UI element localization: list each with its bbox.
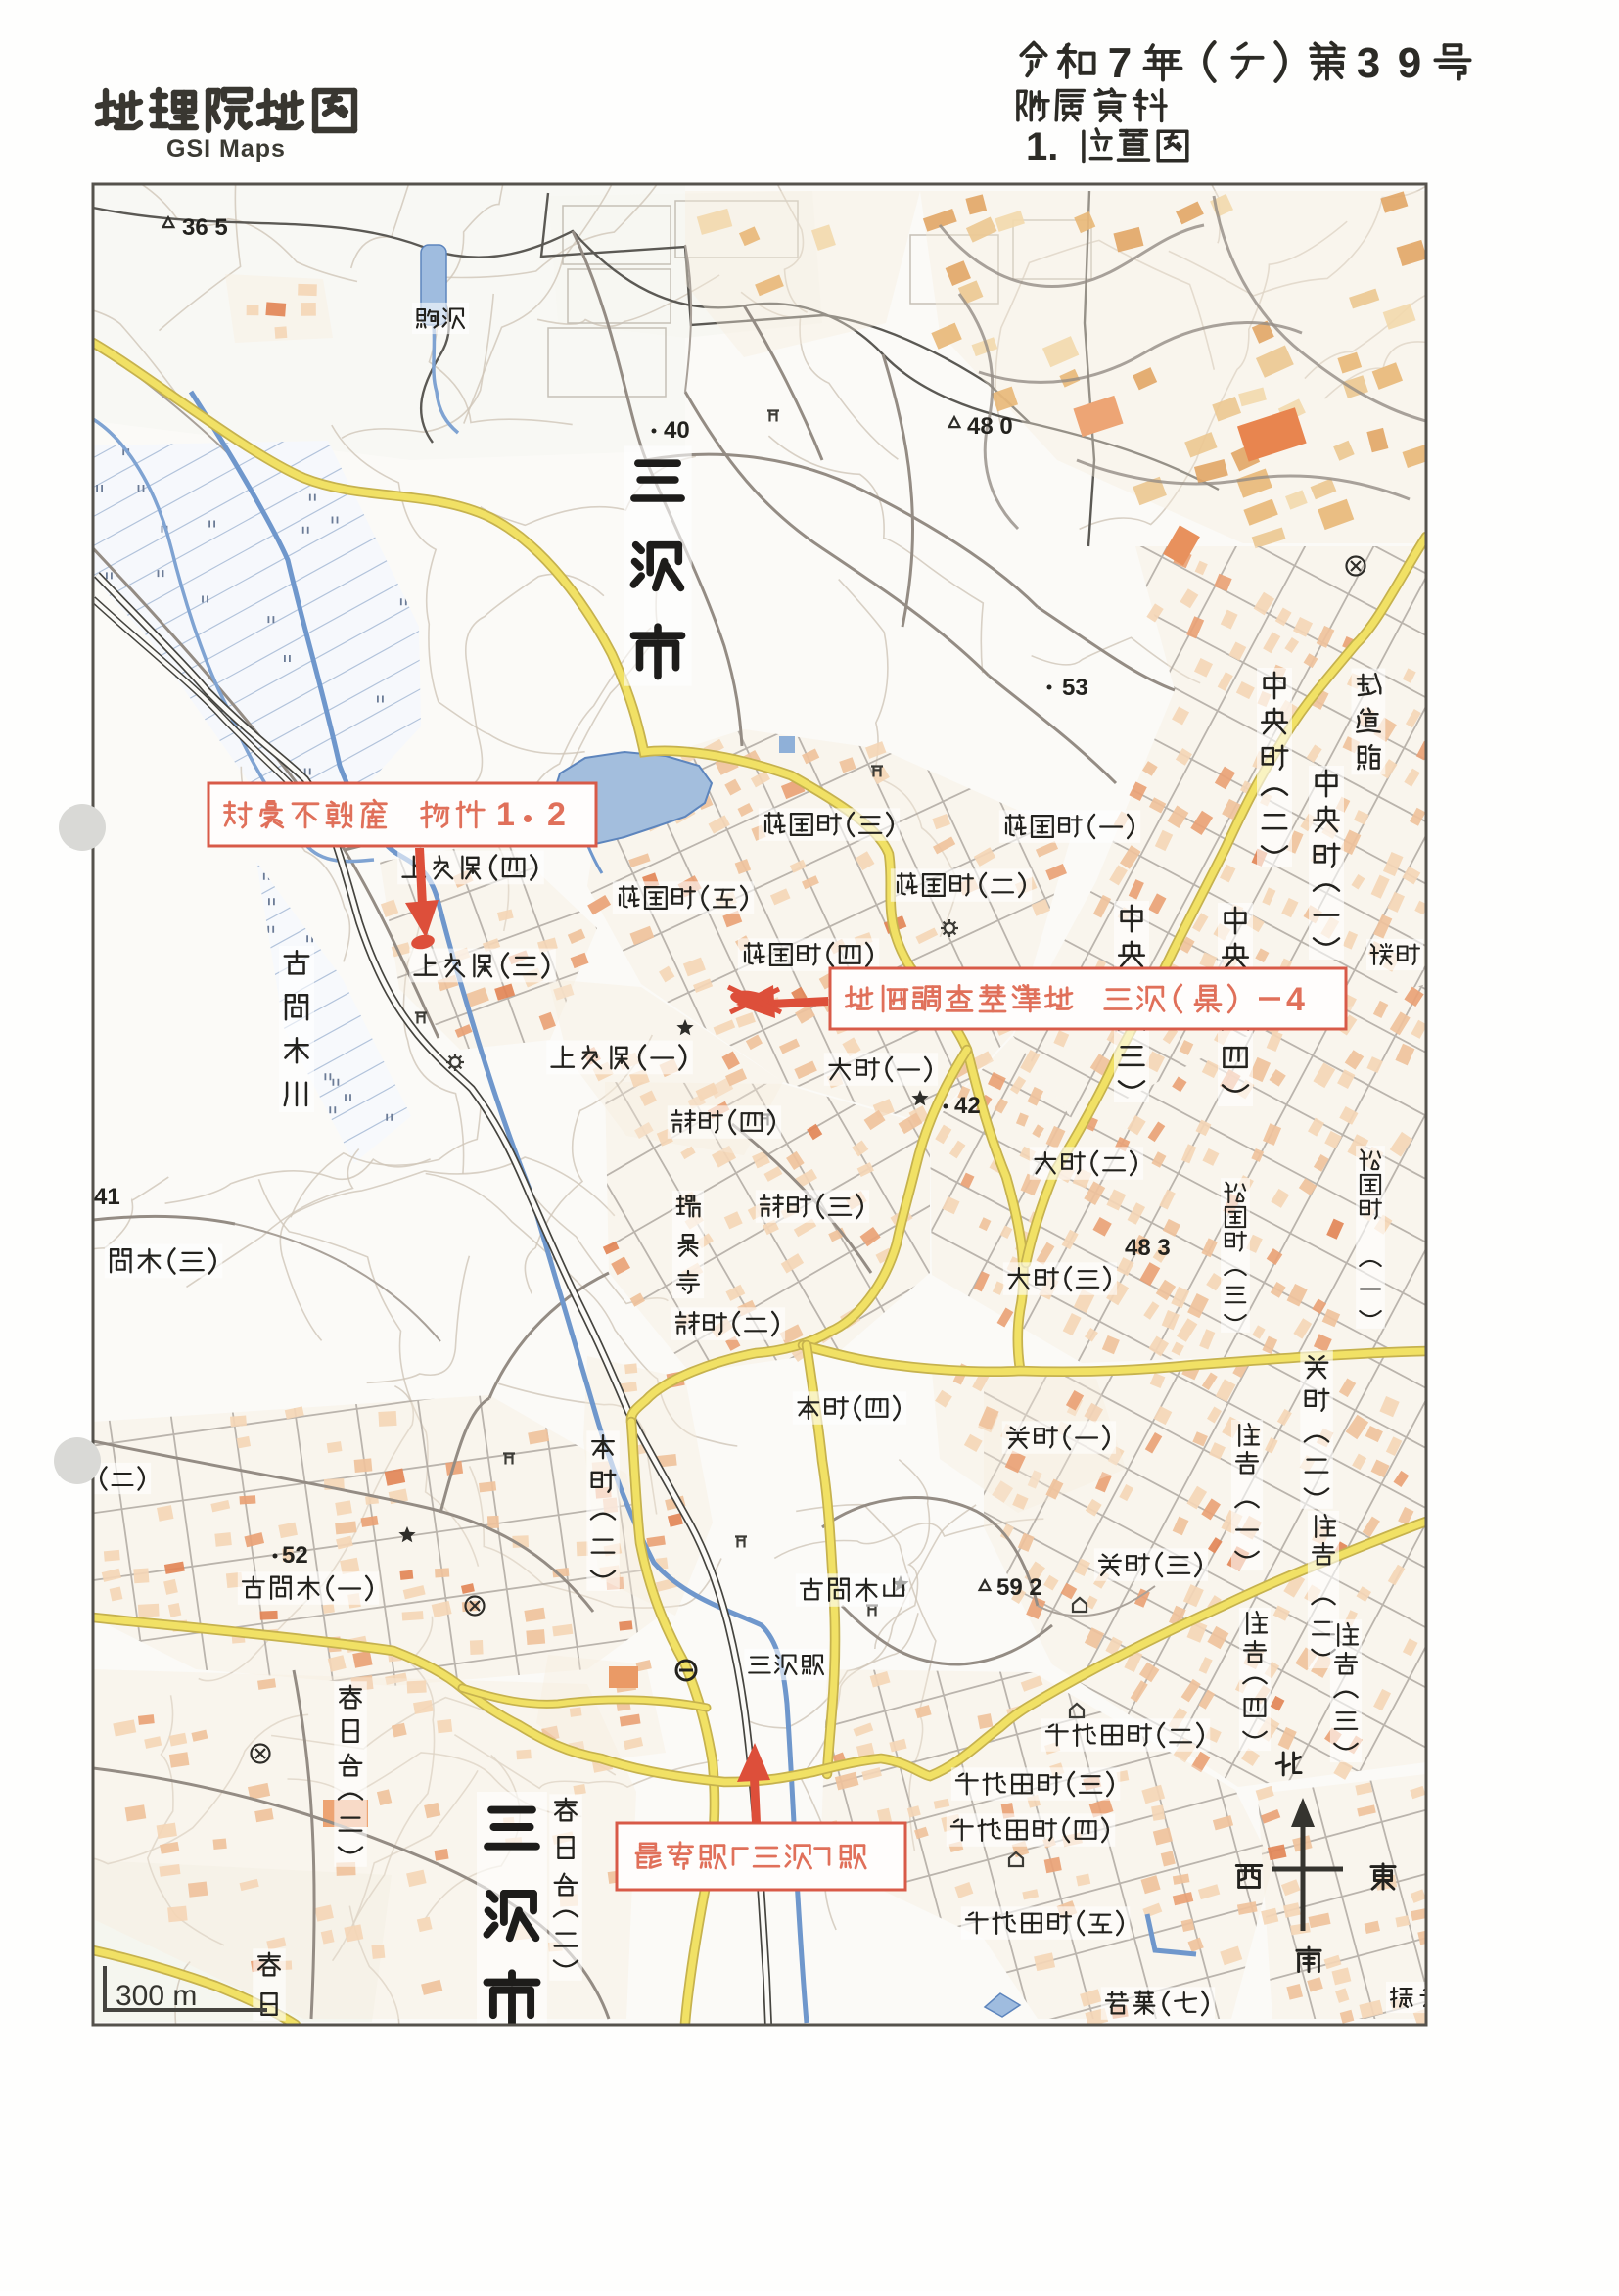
- svg-text:48 3: 48 3: [1125, 1235, 1171, 1261]
- svg-text:1.: 1.: [1026, 125, 1058, 168]
- svg-text:9: 9: [1398, 39, 1421, 87]
- svg-text:2: 2: [547, 796, 566, 833]
- svg-text:53: 53: [1062, 675, 1088, 701]
- svg-text:41: 41: [94, 1184, 120, 1210]
- svg-text:300 m: 300 m: [116, 1980, 197, 2012]
- svg-text:4: 4: [1286, 981, 1305, 1018]
- svg-text:40: 40: [664, 417, 690, 444]
- svg-text:42: 42: [954, 1093, 981, 1119]
- svg-text:GSI Maps: GSI Maps: [166, 135, 286, 163]
- svg-text:3: 3: [1357, 39, 1380, 87]
- svg-text:59 2: 59 2: [996, 1574, 1042, 1601]
- svg-text:36 5: 36 5: [182, 214, 228, 241]
- svg-text:48 0: 48 0: [967, 413, 1013, 440]
- svg-text:52: 52: [282, 1542, 308, 1569]
- svg-text:7: 7: [1108, 39, 1132, 87]
- svg-text:1: 1: [496, 796, 515, 833]
